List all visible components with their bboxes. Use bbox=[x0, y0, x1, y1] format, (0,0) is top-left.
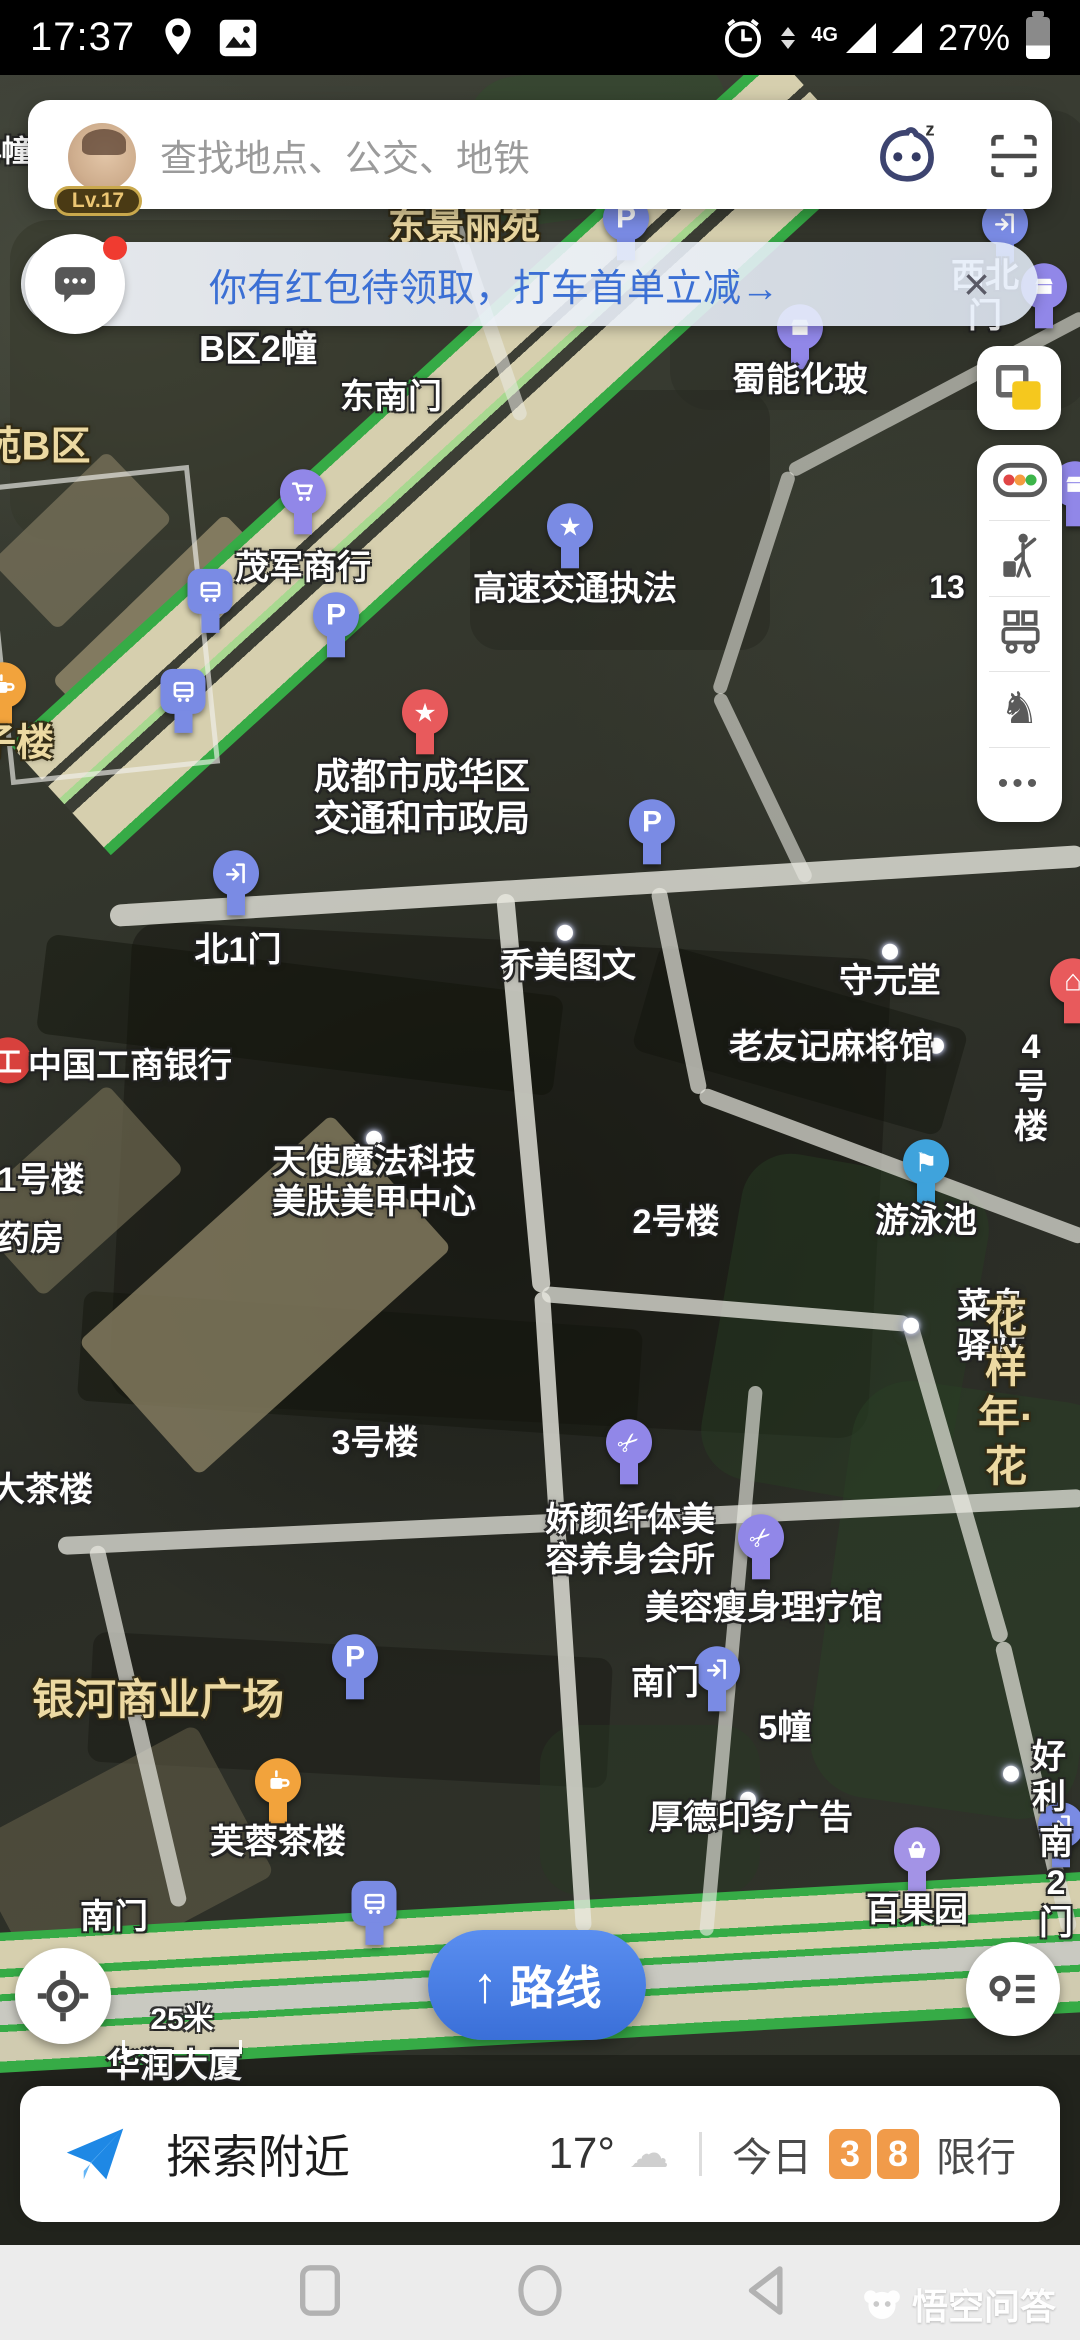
more-icon: ••• bbox=[998, 767, 1042, 801]
avatar[interactable] bbox=[68, 123, 136, 191]
gate-pin[interactable] bbox=[694, 1646, 740, 1711]
basket-pin[interactable] bbox=[894, 1827, 940, 1892]
signal2-icon bbox=[892, 23, 922, 53]
tool-transit[interactable] bbox=[977, 596, 1062, 671]
tool-more[interactable]: ••• bbox=[977, 747, 1062, 822]
locate-icon bbox=[35, 1968, 91, 2024]
road bbox=[712, 691, 815, 885]
dot-pin bbox=[366, 1131, 382, 1147]
gate-pin[interactable] bbox=[1038, 1802, 1080, 1867]
dot-pin bbox=[740, 1792, 756, 1808]
scenic-horse-icon: ♞ bbox=[1000, 687, 1039, 731]
cart-pin[interactable] bbox=[280, 469, 326, 534]
svg-text:z: z bbox=[925, 122, 934, 140]
back-button[interactable] bbox=[742, 2263, 788, 2322]
route-list-button[interactable] bbox=[966, 1942, 1060, 2036]
icbc-pin[interactable]: 工 bbox=[0, 1037, 31, 1083]
map-label: 成都市成华区 交通和市政局 bbox=[314, 756, 530, 841]
home-button[interactable] bbox=[514, 2262, 566, 2323]
restriction-digits: 38 bbox=[826, 2129, 922, 2179]
status-bar: 17:37 4G 27% bbox=[0, 0, 1080, 75]
restriction-digit: 8 bbox=[877, 2129, 919, 2179]
map-label: 13 bbox=[929, 569, 965, 607]
dot-pin bbox=[557, 925, 573, 941]
route-list-icon bbox=[987, 1966, 1039, 2012]
network-type: 4G bbox=[811, 24, 838, 47]
map-label: 5幢 bbox=[759, 1708, 812, 1748]
divider bbox=[699, 2132, 702, 2176]
map-layers-button[interactable] bbox=[977, 346, 1061, 430]
promo-banner[interactable]: 你有红包待领取，打车首单立减→ × bbox=[21, 242, 1038, 326]
map-label: 大茶楼 bbox=[0, 1470, 93, 1510]
map-canvas[interactable]: P★P★P⌂工⚑✂✂P 4幢东景丽苑西北门B区2幢东南门蜀能化玻苑B区茂军商行高… bbox=[0, 0, 1080, 2245]
battery-percent: 27% bbox=[938, 17, 1010, 59]
restriction-label: 限行 bbox=[936, 2125, 1016, 2183]
transit-icon bbox=[995, 608, 1045, 659]
map-tools-panel: ♞••• bbox=[977, 445, 1062, 822]
explore-label: 探索附近 bbox=[166, 2121, 350, 2187]
restriction-digit: 3 bbox=[829, 2129, 871, 2179]
dot-pin bbox=[903, 1318, 919, 1334]
tea-orange-pin[interactable] bbox=[0, 662, 26, 727]
tea-orange-pin[interactable] bbox=[255, 1758, 301, 1823]
bus-pin[interactable] bbox=[352, 1881, 397, 1945]
star-red-pin[interactable]: ★ bbox=[402, 689, 448, 754]
swim-pin[interactable]: ⚑ bbox=[903, 1139, 949, 1204]
star-blue-pin[interactable]: ★ bbox=[547, 503, 593, 568]
scissors-pin[interactable]: ✂ bbox=[738, 1514, 784, 1579]
user-level-badge: Lv.17 bbox=[54, 186, 142, 216]
paper-plane-icon bbox=[64, 2125, 126, 2183]
today-label: 今日 bbox=[732, 2125, 812, 2183]
map-label: 4幢 bbox=[0, 134, 31, 169]
temperature: 17° bbox=[548, 2129, 615, 2179]
scale-label: 25米 bbox=[150, 2003, 213, 2036]
scan-icon[interactable] bbox=[988, 132, 1040, 185]
promo-text[interactable]: 你有红包待领取，打车首单立减→ bbox=[209, 242, 779, 326]
tool-taxi-hail[interactable] bbox=[977, 520, 1062, 595]
assistant-robot-icon[interactable]: z bbox=[873, 122, 941, 191]
bus-pin[interactable] bbox=[188, 569, 233, 633]
battery-icon bbox=[1026, 17, 1050, 59]
explore-nearby-bar[interactable]: 探索附近 17° ☁ 今日 38 限行 bbox=[20, 2086, 1060, 2222]
layers-icon bbox=[992, 361, 1046, 415]
gallery-icon bbox=[217, 17, 259, 59]
weather-cloud-icon: ☁ bbox=[629, 2131, 669, 2177]
scale-bar bbox=[122, 2040, 242, 2054]
clock: 17:37 bbox=[30, 15, 135, 60]
bus-pin[interactable] bbox=[161, 669, 206, 733]
house-red-pin[interactable]: ⌂ bbox=[1050, 958, 1080, 1023]
map-label: 南门 bbox=[631, 1663, 699, 1703]
signal-icon bbox=[846, 23, 876, 53]
tool-traffic-conditions[interactable] bbox=[977, 445, 1062, 520]
search-bar[interactable]: Lv.17 查找地点、公交、地铁 z bbox=[28, 100, 1052, 209]
sync-arrows-icon bbox=[781, 20, 795, 56]
monkey-logo-icon bbox=[860, 2284, 904, 2324]
taxi-hail-icon bbox=[997, 531, 1043, 586]
watermark: 悟空问答 bbox=[860, 2278, 1056, 2330]
scissors-pin[interactable]: ✂ bbox=[606, 1419, 652, 1484]
phone-screen: P★P★P⌂工⚑✂✂P 4幢东景丽苑西北门B区2幢东南门蜀能化玻苑B区茂军商行高… bbox=[0, 0, 1080, 2340]
dot-pin bbox=[1003, 1766, 1019, 1782]
route-button[interactable]: ↑ 路线 bbox=[428, 1930, 646, 2040]
traffic-conditions-icon bbox=[993, 460, 1047, 505]
search-input[interactable]: 查找地点、公交、地铁 bbox=[160, 100, 530, 209]
dot-pin bbox=[882, 944, 898, 960]
notification-dot bbox=[103, 236, 127, 260]
location-pin-icon bbox=[161, 17, 195, 59]
route-label: 路线 bbox=[510, 1952, 602, 2018]
gate-pin[interactable] bbox=[213, 850, 259, 915]
android-nav-bar: 悟空问答 bbox=[0, 2245, 1080, 2340]
close-icon[interactable]: × bbox=[963, 242, 990, 326]
recents-button[interactable] bbox=[297, 2262, 343, 2323]
locate-button[interactable] bbox=[15, 1948, 111, 2044]
tool-scenic-horse[interactable]: ♞ bbox=[977, 671, 1062, 746]
watermark-text: 悟空问答 bbox=[912, 2278, 1056, 2330]
message-bubble-icon[interactable] bbox=[25, 234, 125, 334]
parking-pin[interactable]: P bbox=[313, 592, 359, 657]
dot-pin bbox=[928, 1038, 944, 1054]
map-label: 4号楼 bbox=[1007, 1027, 1056, 1147]
parking-pin[interactable]: P bbox=[332, 1634, 378, 1699]
alarm-icon bbox=[721, 16, 765, 60]
parking-pin[interactable]: P bbox=[629, 799, 675, 864]
route-arrow-icon: ↑ bbox=[473, 1960, 498, 2010]
map-scale: 25米 bbox=[122, 1994, 242, 2054]
map-label: 3号楼 bbox=[332, 1423, 419, 1463]
